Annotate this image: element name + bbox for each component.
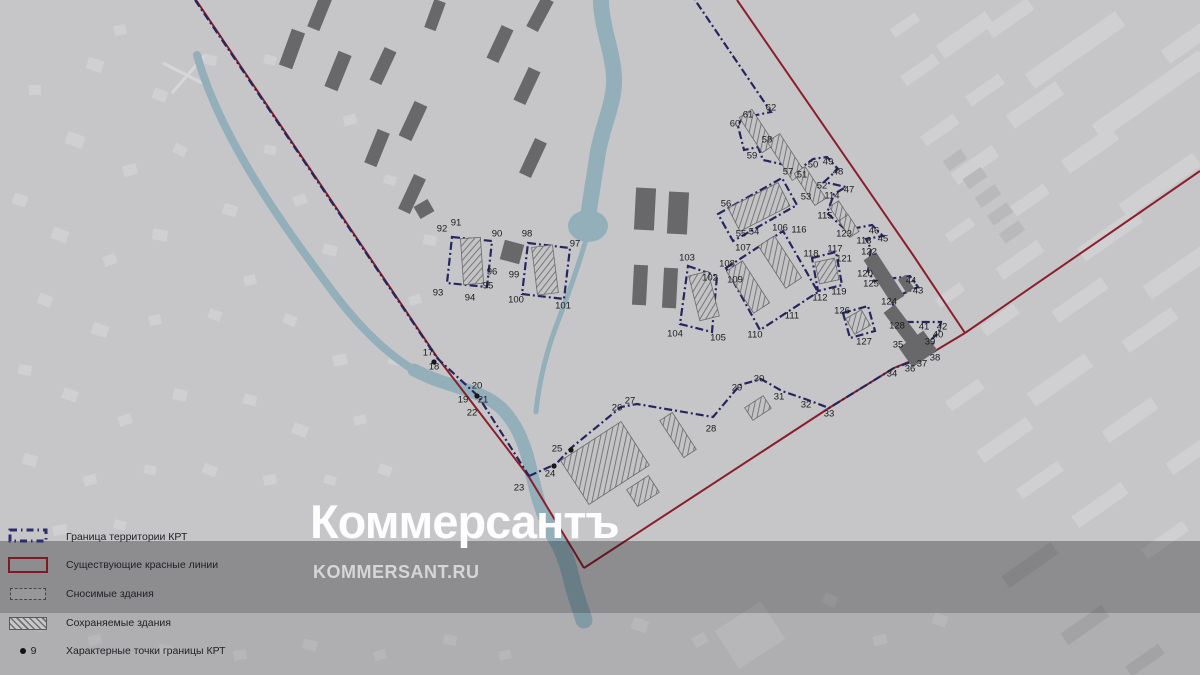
background-building [986,0,1035,38]
background-building [18,364,32,376]
boundary-point-label: 125 [863,279,879,290]
legend-label: Существующие красные линии [66,559,218,571]
red-lines-icon [8,558,48,573]
boundary-point-label: 55 [736,229,747,240]
boundary-point-label: 60 [730,119,741,130]
boundary-point-label: 50 [808,160,819,171]
background-building [263,474,278,486]
background-building [1071,482,1128,528]
boundary-point-label: 32 [801,400,812,411]
dim-band [0,541,1200,613]
background-building [975,184,1002,208]
boundary-point-label: 101 [555,301,571,312]
background-building [148,314,162,326]
legend-label: Сносимые здания [66,588,154,600]
boundary-point-label: 108 [719,259,735,270]
boundary-point-label: 116 [791,225,806,236]
demolished-building [324,51,351,91]
boundary-point-label: 47 [844,185,855,196]
demolished-building [279,29,305,69]
background-building [152,228,169,241]
boundary-point-label: 45 [878,234,889,245]
boundary-point-label: 21 [478,395,489,406]
kommersant-site-label: KOMMERSANT.RU [313,562,480,583]
boundary-point-label: 31 [774,392,785,403]
preserved-icon [8,616,48,631]
background-building [172,388,188,402]
boundary-point-label: 100 [508,295,524,306]
boundary-point-label: 105 [710,333,726,344]
legend-label: Граница территории КРТ [66,531,187,543]
boundary-point-label: 115 [817,211,832,222]
demolished-building [414,199,435,219]
news-card: 1718192021222324252627282930313233343536… [0,0,1200,675]
boundary-point-label: 123 [836,229,852,240]
demolished-icon [8,587,48,602]
background-building [243,274,257,287]
boundary-point-label: 97 [570,239,581,250]
boundary-point-label: 122 [861,247,877,258]
background-building [102,253,118,267]
boundary-point-label: 34 [887,369,898,380]
background-building [322,243,338,256]
background-building [1010,184,1050,217]
background-building [22,453,39,468]
boundary-vertex-dot [568,447,573,452]
background-building [242,393,257,406]
background-building [282,313,298,327]
boundary-point-label: 96 [487,267,498,278]
boundary-point-label: 110 [747,330,762,341]
boundary-point-label: 95 [483,281,494,292]
background-building [1101,397,1158,443]
pond [568,210,608,242]
boundary-point-label: 49 [823,157,834,168]
boundary-point-label: 106 [772,223,788,234]
background-building [936,11,994,59]
legend-label: Характерные точки границы КРТ [66,645,226,657]
background-building [377,463,392,477]
boundary-point-label: 61 [743,110,754,121]
background-building [323,474,337,486]
background-building [408,294,422,306]
background-building [82,473,97,486]
demolished-building [667,192,689,235]
boundary-point-label: 90 [492,229,503,240]
preserved-building [532,245,559,295]
background-building [172,143,188,158]
boundary-point-label: 48 [833,167,844,178]
boundary-point-label: 127 [856,337,872,348]
background-building [292,193,308,207]
boundary-point-label: 22 [467,408,478,419]
boundary-point-label: 28 [706,424,717,435]
boundary-point-label: 56 [721,199,732,210]
background-building [423,234,438,246]
boundary-point-label: 42 [937,322,948,333]
boundary-point-label: 93 [433,288,444,299]
background-building [965,74,1005,107]
background-building [996,240,1045,280]
background-building [202,463,219,477]
boundary-point-label: 23 [514,483,525,494]
demolished-building [399,101,428,141]
background-building [1121,307,1178,353]
demolished-building [307,0,333,31]
boundary-point-label: 114 [824,191,839,202]
legend-item-boundary-points: 9 Характерные точки границы КРТ [8,642,226,660]
background-building [1051,277,1108,323]
boundary-point-label: 92 [437,224,448,235]
background-building [945,379,985,412]
boundary-point-label: 44 [906,276,917,287]
background-building [342,113,357,126]
demolished-building [634,188,656,231]
boundary-point-label: 25 [552,444,563,455]
boundary-point-label: 94 [465,293,476,304]
boundary-point-label: 103 [679,253,695,264]
background-building [920,114,960,147]
background-building [976,417,1033,463]
background-building [1166,435,1200,475]
background-building [91,322,110,338]
river [587,0,614,228]
preserved-building [745,396,772,421]
boundary-point-label: 20 [472,381,483,392]
demolished-building [500,240,524,264]
background-building [50,227,69,244]
boundary-point-label: 53 [801,192,812,203]
background-building [1061,126,1119,174]
boundary-point-label: 17 [423,348,434,359]
background-building [900,54,940,87]
background-building [987,202,1014,226]
boundary-point-label: 36 [905,364,916,375]
boundary-point-label: 99 [509,270,520,281]
boundary-point-label: 58 [762,135,773,146]
boundary-point-label: 27 [625,396,636,407]
background-building [1092,50,1200,139]
background-building [61,387,79,402]
boundary-point-label: 54 [749,227,760,238]
background-building [143,465,156,476]
background-building [12,193,28,207]
red-line-path [965,171,1200,333]
background-building [222,203,239,218]
boundary-point-label: 59 [747,151,758,162]
demolished-building [424,0,446,31]
legend-item-preserved: Сохраняемые здания [8,614,171,632]
background-building [207,308,223,322]
background-building [1016,461,1064,500]
background-building [1027,353,1094,406]
preserved-building [627,476,660,507]
demolished-building [526,0,553,32]
boundary-point-label: 18 [429,362,440,373]
background-building [263,54,277,66]
preserved-building [660,412,697,457]
boundary-point-label: 29 [732,383,743,394]
boundary-point-label: 30 [754,374,765,385]
boundary-point-label: 118 [803,249,818,260]
legend-item-red-lines: Существующие красные линии [8,556,218,574]
legend-item-demolished: Сносимые здания [8,585,154,603]
boundary-point-label: 41 [919,322,930,333]
red-line-path [737,0,965,333]
background-building [353,414,367,426]
background-building [263,145,276,156]
background-building [64,131,85,149]
boundary-point-label: 113 [856,236,871,247]
boundary-point-label: 35 [893,340,904,351]
boundary-point-label: 119 [831,287,846,298]
boundary-point-label: 109 [727,275,743,286]
boundary-point-label: 26 [612,403,623,414]
legend-item-krt-boundary: Граница территории КРТ [8,528,187,546]
boundary-point-label: 104 [667,329,683,340]
demolished-building [370,47,397,85]
boundary-point-label: 126 [834,306,850,317]
background-building [332,353,348,366]
background-building [122,163,138,177]
boundary-point-label: 37 [917,359,928,370]
kommersant-logo: Коммерсантъ [310,498,619,545]
background-building [113,24,127,36]
boundary-point-label: 62 [766,103,777,114]
boundary-point-label: 111 [785,311,799,322]
background-building [1025,11,1125,89]
boundary-point-label: 43 [913,286,924,297]
background-building [1119,153,1200,218]
demolished-building [514,67,541,105]
background-building [999,220,1026,244]
preserved-building [758,236,801,288]
demolished-building [632,265,648,306]
boundary-point-icon: 9 [8,644,48,659]
demolished-building [487,25,514,63]
preserved-building [460,237,483,284]
background-building [383,174,397,186]
background-building [291,422,309,437]
background-building [117,413,132,427]
boundary-point-label: 112 [812,293,827,304]
boundary-point-label: 19 [458,395,469,406]
krt-boundary-icon [8,530,48,545]
boundary-point-label: 124 [881,297,897,308]
boundary-point-label: 102 [702,273,718,284]
background-building [1143,241,1200,300]
boundary-point-label: 121 [836,254,852,265]
background-building [890,12,920,37]
demolished-building [662,268,678,309]
boundary-point-label: 98 [522,229,533,240]
boundary-point-label: 24 [545,469,556,480]
boundary-point-label: 128 [889,321,905,332]
demolished-building [519,138,547,178]
background-building [36,292,53,307]
boundary-point-label: 91 [451,218,462,229]
boundary-point-label: 57 [783,167,794,178]
demolished-building [364,129,390,167]
boundary-point-label: 33 [824,409,835,420]
background-building [945,217,975,242]
legend-label: Сохраняемые здания [66,617,171,629]
boundary-point-label: 51 [797,170,808,181]
background-building [86,57,105,73]
boundary-point-label: 38 [930,353,941,364]
background-building [152,87,169,102]
boundary-point-label: 107 [735,243,751,254]
background-building [29,85,41,95]
